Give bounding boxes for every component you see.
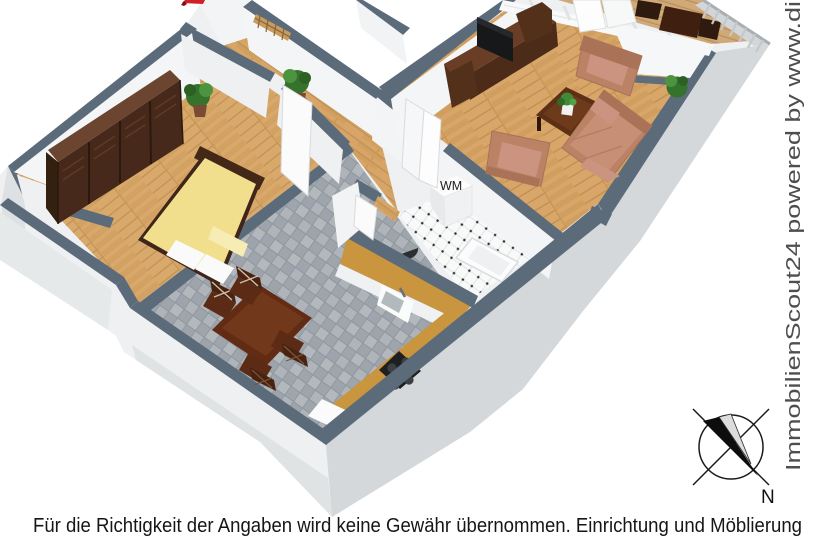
svg-text:Für die Richtigkeit der Angabe: Für die Richtigkeit der Angaben wird kei… [33,515,802,537]
svg-text:WM: WM [440,179,462,193]
svg-text:N: N [761,487,775,508]
svg-text:ImmobilienScout24 powered by w: ImmobilienScout24 powered by www.di [783,1,805,471]
